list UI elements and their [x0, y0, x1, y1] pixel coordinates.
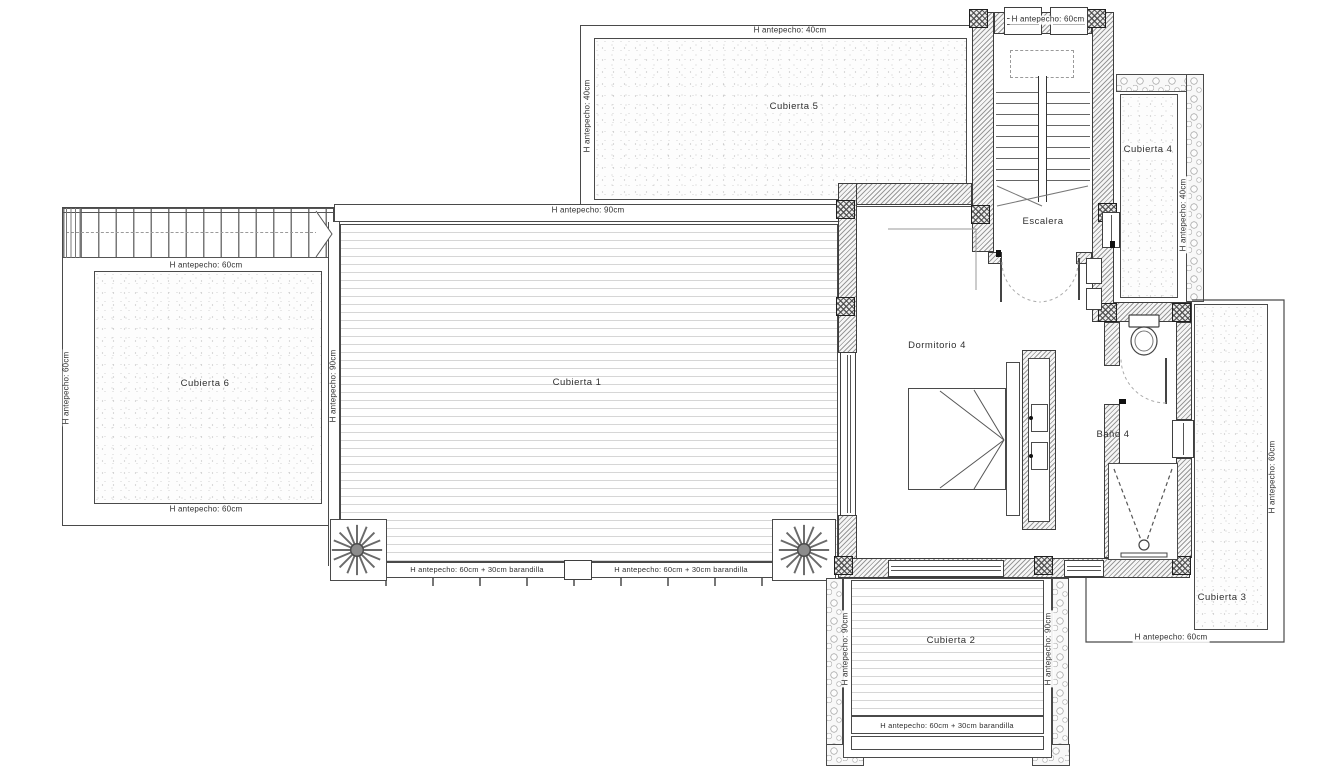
- glass-line: [1067, 566, 1101, 567]
- label-cubierta-4: Cubierta 4: [1122, 145, 1175, 155]
- column-south-mid: [1034, 556, 1053, 575]
- parapet-label-c5-left: H antepecho: 40cm: [584, 78, 593, 155]
- niche-2: [1086, 288, 1102, 310]
- cubierta2-deck: [851, 580, 1044, 716]
- parapet-label-c1-top: H antepecho: 90cm: [550, 207, 627, 216]
- wardrobe-line: [888, 229, 976, 290]
- pergola-top-line: [63, 212, 333, 213]
- cubierta2-stone-right: [1052, 578, 1069, 760]
- parapet-label-stair-top: H antepecho: 60cm: [1010, 16, 1087, 25]
- stair-landing-dashed: [1010, 50, 1074, 78]
- pergola-dense-end: [66, 208, 82, 258]
- niche-1: [1086, 258, 1102, 284]
- parapet-label-c1-bottom-left: H antepecho: 60cm + 30cm barandilla: [408, 566, 546, 574]
- faucet-icon: [1029, 454, 1033, 458]
- bedroom-south-window-1: [888, 560, 1004, 577]
- door-leaf-left: [1000, 258, 1002, 302]
- label-bano-4: Baño 4: [1094, 430, 1131, 440]
- wall-north: [838, 183, 972, 205]
- column-stair-ne: [1087, 9, 1106, 28]
- cubierta5-area: [594, 38, 967, 200]
- label-escalera: Escalera: [1021, 217, 1066, 227]
- faucet-icon: [1029, 416, 1033, 420]
- column-west-2: [836, 297, 855, 316]
- parapet-label-c6-bottom: H antepecho: 60cm: [168, 506, 245, 515]
- bath-door-swing-arc: [1121, 359, 1166, 403]
- label-cubierta-1: Cubierta 1: [551, 378, 604, 388]
- parapet-label-c6-left: H antepecho: 60cm: [63, 350, 72, 427]
- cubierta4-stone-top: [1116, 74, 1192, 92]
- glass-line: [850, 355, 851, 513]
- parapet-label-c3-bottom: H antepecho: 60cm: [1133, 634, 1210, 643]
- parapet-label-c2-right: H antepecho: 90cm: [1045, 611, 1054, 688]
- cubierta4-stone-right: [1186, 74, 1204, 302]
- label-cubierta-2: Cubierta 2: [925, 636, 978, 646]
- bath-east-window: [1172, 420, 1194, 458]
- glass-line: [1183, 423, 1184, 455]
- cubierta2-bottom-band: [851, 736, 1044, 750]
- cubierta4-area: [1120, 94, 1178, 298]
- palm-box-left: [330, 519, 387, 581]
- sink-1: [1031, 404, 1048, 432]
- door-stop-left: [996, 250, 1001, 257]
- column-south-west: [834, 556, 853, 575]
- shower-tray: [1108, 463, 1178, 560]
- parapet-label-c4-right: H antepecho: 40cm: [1180, 177, 1189, 254]
- cubierta1-deck: [340, 224, 838, 562]
- parapet-label-c1-left: H antepecho: 90cm: [330, 348, 339, 425]
- parapet-label-c3-right: H antepecho: 60cm: [1269, 439, 1278, 516]
- door-swing-arc: [1002, 262, 1040, 302]
- label-cubierta-6: Cubierta 6: [179, 379, 232, 389]
- parapet-label-c6-top: H antepecho: 60cm: [168, 262, 245, 271]
- glass-line: [1067, 570, 1101, 571]
- bed-headboard: [1006, 362, 1020, 516]
- parapet-label-c1-bottom-right: H antepecho: 60cm + 30cm barandilla: [612, 566, 750, 574]
- pergola-center-dash: [66, 232, 318, 233]
- parapet-label-c2-bottom: H antepecho: 60cm + 30cm barandilla: [878, 722, 1016, 730]
- wall-bath-east-lower: [1176, 458, 1192, 558]
- wall-bath-west-upper: [1104, 322, 1120, 366]
- bed-mattress: [908, 388, 1006, 490]
- bedroom-south-window-2: [1064, 560, 1104, 577]
- floor-plan: Cubierta 5 Cubierta 6 Cubierta 1 Cubiert…: [0, 0, 1324, 780]
- label-cubierta-5: Cubierta 5: [768, 102, 821, 112]
- sink-2: [1031, 442, 1048, 470]
- bath-door-leaf: [1165, 358, 1167, 404]
- glass-line: [891, 566, 1001, 567]
- palm-box-right: [772, 519, 836, 581]
- column-bath-ne: [1172, 303, 1191, 322]
- door-leaf-right: [1078, 258, 1080, 300]
- door-swing-arc: [1040, 262, 1078, 302]
- label-dormitorio-4: Dormitorio 4: [906, 341, 968, 351]
- column-west-1: [836, 200, 855, 219]
- cubierta1-rail-gap: [564, 560, 592, 580]
- label-cubierta-3: Cubierta 3: [1196, 593, 1249, 603]
- vanity-top: [1028, 358, 1050, 522]
- column-stair-nw: [969, 9, 988, 28]
- glass-line: [891, 570, 1001, 571]
- stair-center-rail: [1038, 76, 1047, 202]
- pergola-slats: [63, 208, 333, 258]
- column-bedroom-nw: [971, 205, 990, 224]
- bath-door-stop: [1119, 399, 1126, 404]
- glass-line: [847, 355, 848, 513]
- bedroom-west-window: [840, 352, 856, 516]
- cubierta3-area: [1194, 304, 1268, 630]
- parapet-label-c5-top: H antepecho: 40cm: [752, 27, 829, 36]
- parapet-label-c2-left: H antepecho: 90cm: [842, 611, 851, 688]
- wall-bath-east-upper: [1176, 322, 1192, 420]
- door-stop-right: [1110, 241, 1115, 248]
